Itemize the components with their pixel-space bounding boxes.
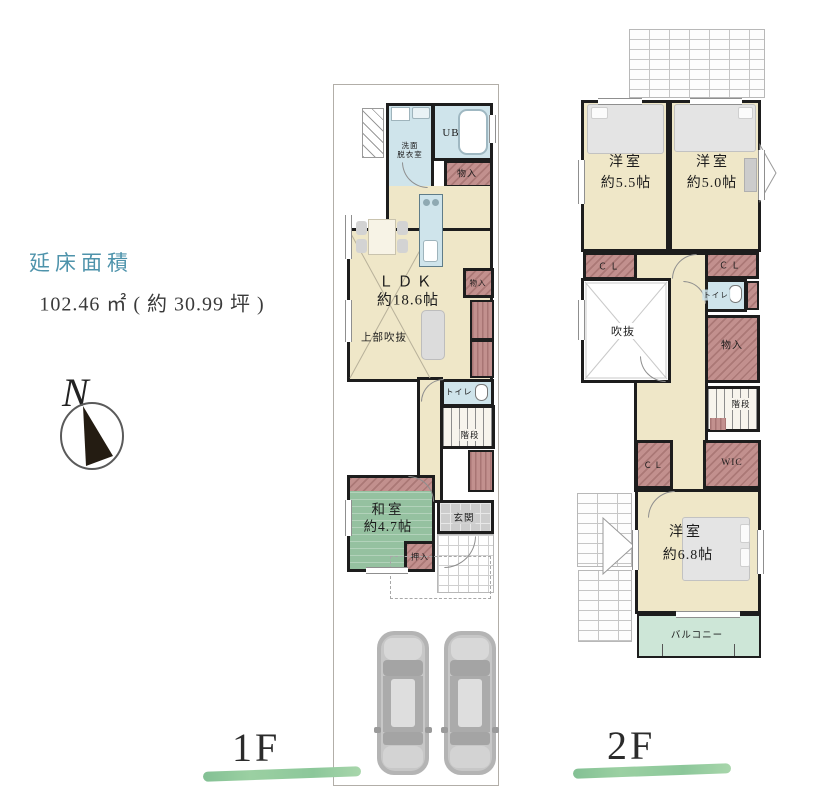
window <box>489 115 496 143</box>
closet-strip <box>468 450 494 492</box>
toilet-icon <box>729 285 742 303</box>
pillow <box>740 524 750 543</box>
bath-label: UB <box>442 127 459 139</box>
balcony-label: バルコニー <box>671 627 723 641</box>
floor2-title: 2F <box>607 722 655 769</box>
bedroom2-size-label: 約5.0帖 <box>687 172 738 192</box>
toilet-1f-label: トイレ <box>446 387 473 398</box>
closet-strip <box>470 300 494 340</box>
bedroom1-size-label: 約5.5帖 <box>601 172 652 192</box>
dining-chair <box>397 221 408 235</box>
stairs-1f-label: 階段 <box>459 429 480 441</box>
vanity-sink-icon <box>412 107 430 119</box>
toilet-2f-label: トイレ <box>702 290 730 301</box>
upper-void-label: 上部吹抜 <box>361 330 407 345</box>
bedroom3-size-label: 約6.8帖 <box>663 544 714 564</box>
bedroom3-label: 洋室 <box>669 521 703 541</box>
window <box>758 150 765 200</box>
dining-chair <box>356 239 367 253</box>
total-area-value: 102.46 ㎡ ( 約 30.99 坪 ) <box>39 288 264 317</box>
stair-steps <box>710 418 726 430</box>
window <box>366 567 408 574</box>
bathtub-icon <box>458 109 488 155</box>
stairs-1f <box>440 405 495 449</box>
window <box>757 530 764 574</box>
window <box>690 98 742 105</box>
closet-strip <box>470 340 494 378</box>
dining-chair <box>356 221 367 235</box>
ldk-size-label: 約18.6帖 <box>377 289 439 310</box>
window <box>345 300 352 342</box>
stove-burner-icon <box>423 199 430 206</box>
bay-window-mark <box>603 516 635 576</box>
pillow <box>591 107 608 119</box>
bedroom2-label: 洋室 <box>696 151 730 171</box>
window <box>345 500 352 536</box>
oshiire-label: 押入 <box>411 552 429 563</box>
closet2-label: ＣＬ <box>719 259 743 272</box>
floor1-title: 1F <box>232 724 280 771</box>
canopy-outline <box>390 556 491 599</box>
car-top-view <box>441 629 499 777</box>
roof-brick-left-lower <box>578 570 632 642</box>
closet3-label: ＣＬ <box>643 459 664 471</box>
pillow <box>738 107 753 119</box>
washing-machine-icon <box>391 107 410 121</box>
dining-chair <box>397 239 408 253</box>
roof-brick-top <box>629 29 765 98</box>
closet1-label: ＣＬ <box>598 260 622 273</box>
total-area-label: 延床面積 <box>29 247 133 277</box>
washroom-label: 洗面脱衣室 <box>397 141 423 159</box>
toilet-sink-counter <box>746 281 759 310</box>
storage-mid-label: 物入 <box>470 278 487 289</box>
toilet-icon <box>475 384 488 401</box>
stairs-2f-label: 階段 <box>730 398 751 410</box>
window <box>632 530 639 570</box>
eaves-hatch <box>362 108 384 158</box>
north-compass-icon: N <box>50 366 146 496</box>
stove-burner-icon <box>432 199 439 206</box>
washitsu-size-label: 約4.7帖 <box>364 515 413 535</box>
void-label: 吹抜 <box>609 323 637 339</box>
window <box>578 300 585 340</box>
sofa <box>421 310 445 360</box>
bedroom1-label: 洋室 <box>609 151 643 171</box>
car-top-view <box>374 629 432 777</box>
wic-label: WIC <box>721 458 742 468</box>
kitchen-sink-icon <box>423 240 438 262</box>
balcony-tick <box>734 644 735 656</box>
balcony-tick <box>662 644 663 656</box>
dining-table <box>368 219 396 255</box>
storage-2f-label: 物入 <box>721 337 743 352</box>
window <box>578 160 585 204</box>
window <box>598 98 642 105</box>
desk <box>744 158 757 192</box>
storage-top-label: 物入 <box>457 167 477 180</box>
floorplan-page: 延床面積 102.46 ㎡ ( 約 30.99 坪 ) N 洗面脱衣室 UB 物… <box>0 0 836 806</box>
pillow <box>740 548 750 567</box>
genkan-label: 玄関 <box>452 510 475 524</box>
window <box>345 215 352 259</box>
window <box>676 611 740 618</box>
